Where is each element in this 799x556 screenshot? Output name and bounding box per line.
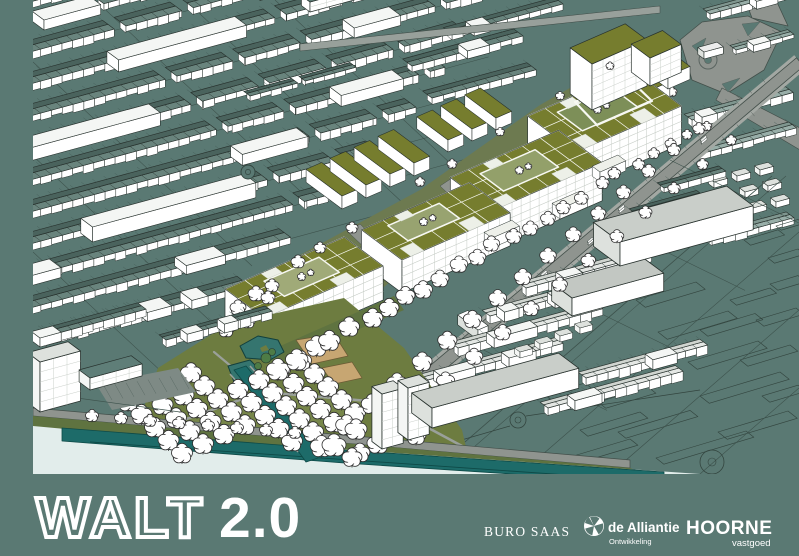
svg-text:WALT: WALT: [36, 486, 205, 550]
svg-text:BURO SAAS: BURO SAAS: [484, 524, 570, 539]
svg-text:de Alliantie: de Alliantie: [608, 520, 680, 535]
svg-text:vastgoed: vastgoed: [732, 538, 771, 549]
svg-text:HOORNE: HOORNE: [686, 518, 772, 539]
svg-text:Ontwikkeling: Ontwikkeling: [609, 537, 652, 546]
svg-text:2.0: 2.0: [219, 486, 301, 550]
